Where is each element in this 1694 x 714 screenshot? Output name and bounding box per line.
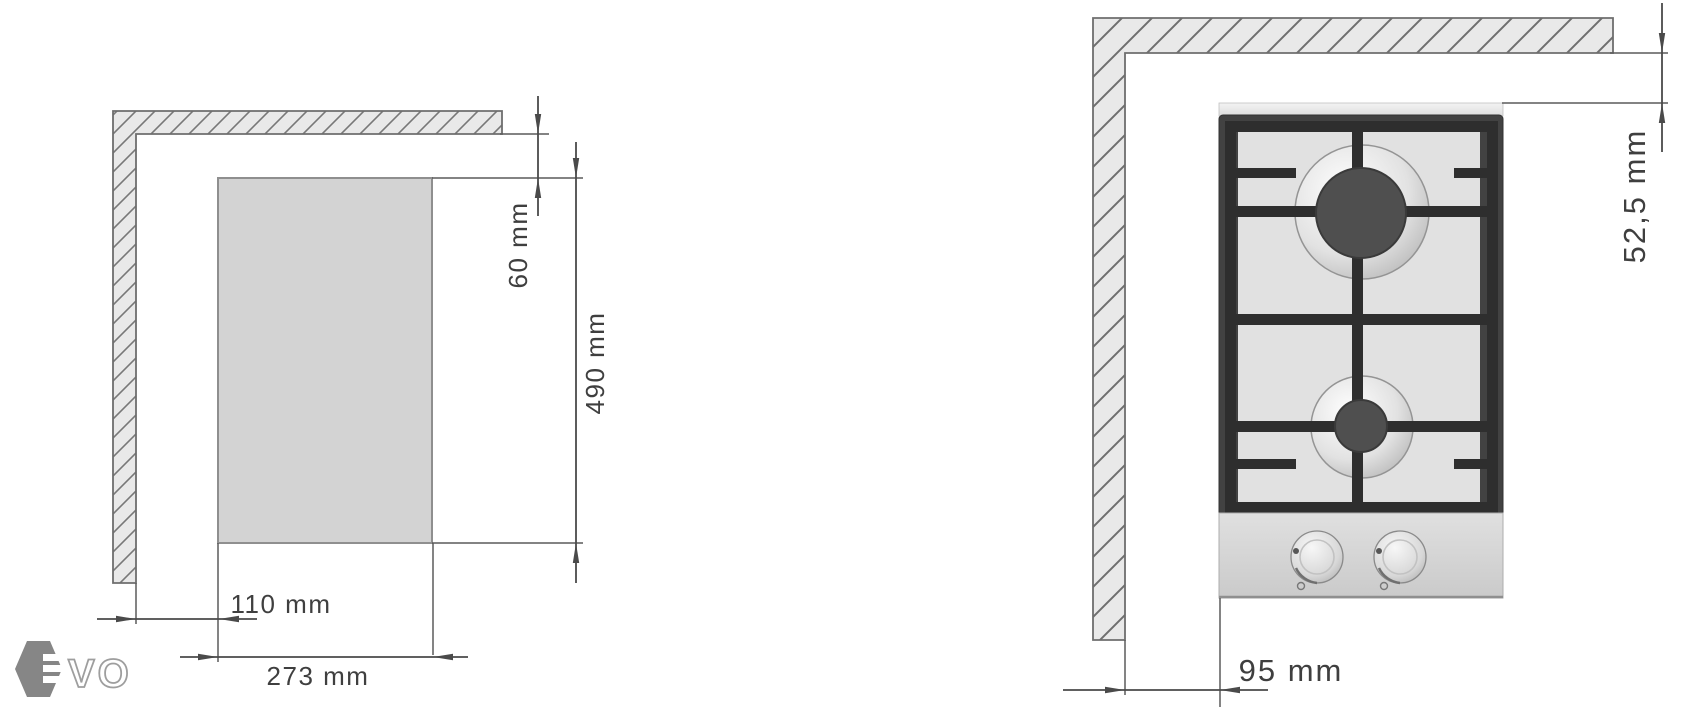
dim-rear-offset-label: 60 mm — [503, 202, 533, 289]
cutout-diagram: 110 mm 273 mm 60 mm 490 mm — [97, 96, 610, 691]
logo-e-bars — [43, 654, 66, 683]
dim-cutout-width-label: 273 mm — [267, 661, 370, 691]
dim-side-offset-label: 110 mm — [231, 589, 332, 619]
hob-control-panel — [1219, 513, 1503, 598]
hob-top-bevel — [1219, 103, 1503, 116]
dim-rear-clearance-label: 52,5 mm — [1617, 129, 1652, 264]
logo-wordmark: VO — [68, 652, 132, 696]
burner-small-center — [1335, 400, 1387, 452]
dim-cutout-depth-label: 490 mm — [580, 312, 610, 415]
burner-large-center — [1316, 168, 1406, 258]
evo-logo: VO — [15, 641, 132, 697]
hob-clearance-diagram: 52,5 mm 95 mm — [1063, 3, 1668, 707]
dim-side-clearance-label: 95 mm — [1239, 653, 1344, 688]
cutout-rect — [218, 178, 432, 543]
diagram-canvas: 110 mm 273 mm 60 mm 490 mm — [0, 0, 1694, 714]
gas-hob — [1219, 103, 1503, 598]
installation-drawing-page: 110 mm 273 mm 60 mm 490 mm — [0, 0, 1694, 714]
